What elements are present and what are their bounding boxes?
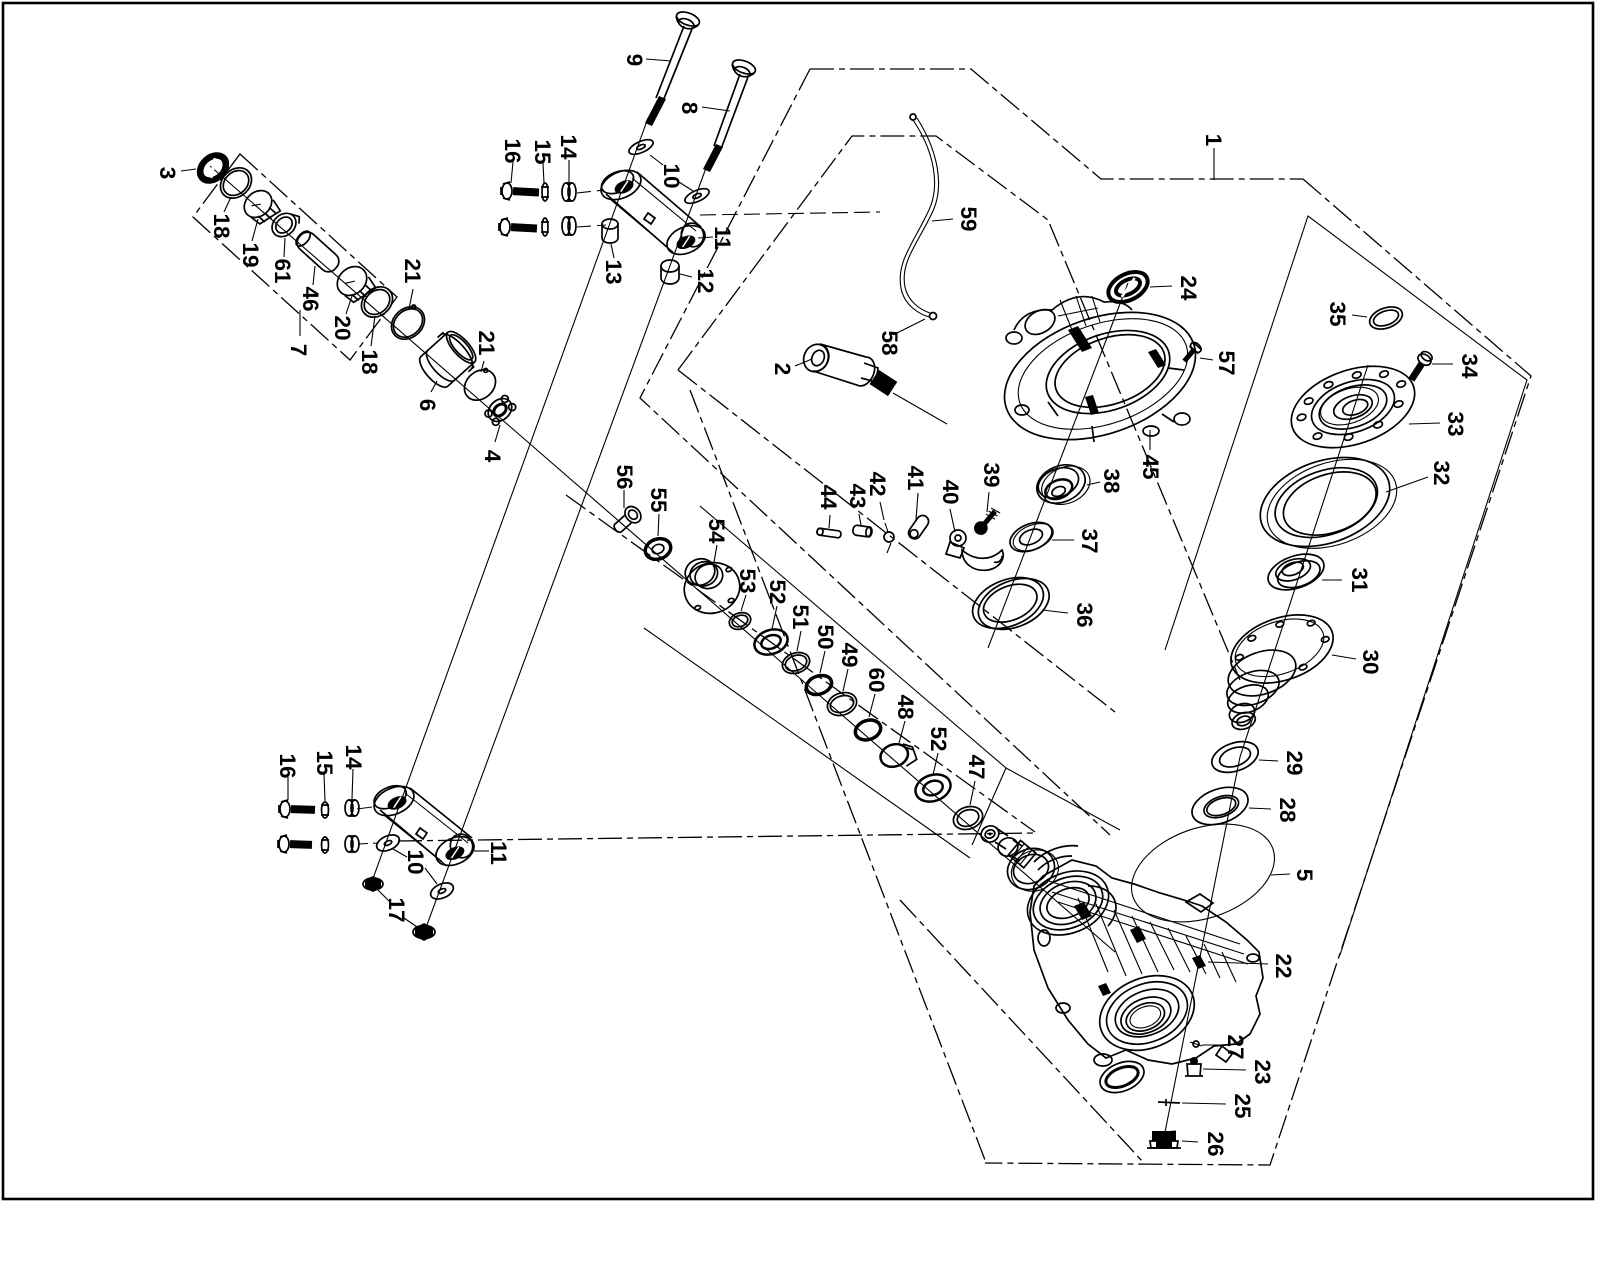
svg-text:16: 16 [500, 138, 525, 163]
svg-text:39: 39 [979, 462, 1004, 487]
svg-text:5: 5 [1292, 869, 1317, 882]
svg-text:23: 23 [1250, 1059, 1275, 1084]
svg-text:15: 15 [312, 750, 337, 775]
svg-text:22: 22 [1271, 953, 1296, 978]
svg-text:15: 15 [530, 139, 555, 164]
svg-text:55: 55 [646, 487, 671, 512]
svg-text:50: 50 [813, 624, 838, 649]
svg-text:52: 52 [926, 726, 951, 751]
svg-text:25: 25 [1230, 1093, 1255, 1118]
svg-text:6: 6 [415, 399, 440, 412]
svg-text:28: 28 [1275, 797, 1300, 822]
svg-text:10: 10 [659, 163, 684, 188]
svg-text:52: 52 [765, 579, 790, 604]
svg-text:44: 44 [816, 484, 841, 510]
svg-text:11: 11 [486, 841, 511, 865]
svg-text:26: 26 [1203, 1131, 1228, 1156]
svg-text:60: 60 [864, 667, 889, 692]
svg-text:9: 9 [622, 54, 647, 67]
svg-text:20: 20 [330, 315, 355, 340]
svg-text:12: 12 [693, 268, 718, 293]
svg-text:36: 36 [1072, 602, 1097, 627]
svg-text:21: 21 [474, 330, 499, 355]
svg-text:34: 34 [1457, 353, 1482, 379]
svg-text:46: 46 [298, 286, 323, 311]
svg-text:8: 8 [677, 102, 702, 115]
svg-text:42: 42 [865, 471, 890, 496]
svg-text:58: 58 [877, 330, 902, 355]
svg-text:29: 29 [1282, 750, 1307, 775]
svg-text:30: 30 [1358, 649, 1383, 674]
svg-text:56: 56 [612, 464, 637, 489]
svg-text:45: 45 [1138, 454, 1163, 479]
svg-text:19: 19 [238, 242, 263, 267]
svg-text:47: 47 [964, 754, 989, 779]
svg-text:17: 17 [384, 897, 409, 922]
svg-text:21: 21 [400, 258, 425, 283]
svg-text:49: 49 [837, 642, 862, 667]
svg-text:54: 54 [704, 518, 729, 544]
svg-text:35: 35 [1325, 301, 1350, 326]
svg-text:33: 33 [1443, 411, 1468, 436]
svg-text:14: 14 [341, 744, 366, 770]
svg-text:1: 1 [1201, 134, 1226, 147]
svg-text:11: 11 [710, 226, 735, 250]
svg-text:51: 51 [788, 604, 813, 629]
svg-text:27: 27 [1223, 1034, 1248, 1059]
svg-text:14: 14 [556, 134, 581, 160]
svg-text:4: 4 [480, 450, 505, 463]
svg-text:18: 18 [209, 213, 234, 238]
svg-text:24: 24 [1176, 275, 1201, 301]
svg-text:2: 2 [770, 363, 795, 376]
svg-text:61: 61 [270, 258, 295, 283]
svg-text:57: 57 [1214, 350, 1239, 375]
svg-text:40: 40 [938, 479, 963, 504]
svg-text:37: 37 [1077, 528, 1102, 553]
svg-text:13: 13 [601, 259, 626, 284]
svg-text:16: 16 [275, 753, 300, 778]
svg-text:10: 10 [403, 849, 428, 874]
svg-text:32: 32 [1429, 460, 1454, 485]
svg-text:59: 59 [956, 206, 981, 231]
svg-text:53: 53 [735, 568, 760, 593]
svg-text:38: 38 [1099, 468, 1124, 493]
svg-text:41: 41 [903, 465, 928, 490]
svg-text:3: 3 [155, 167, 180, 180]
svg-text:48: 48 [893, 694, 918, 719]
svg-text:7: 7 [286, 344, 311, 357]
svg-text:18: 18 [357, 349, 382, 374]
svg-text:31: 31 [1347, 567, 1372, 592]
